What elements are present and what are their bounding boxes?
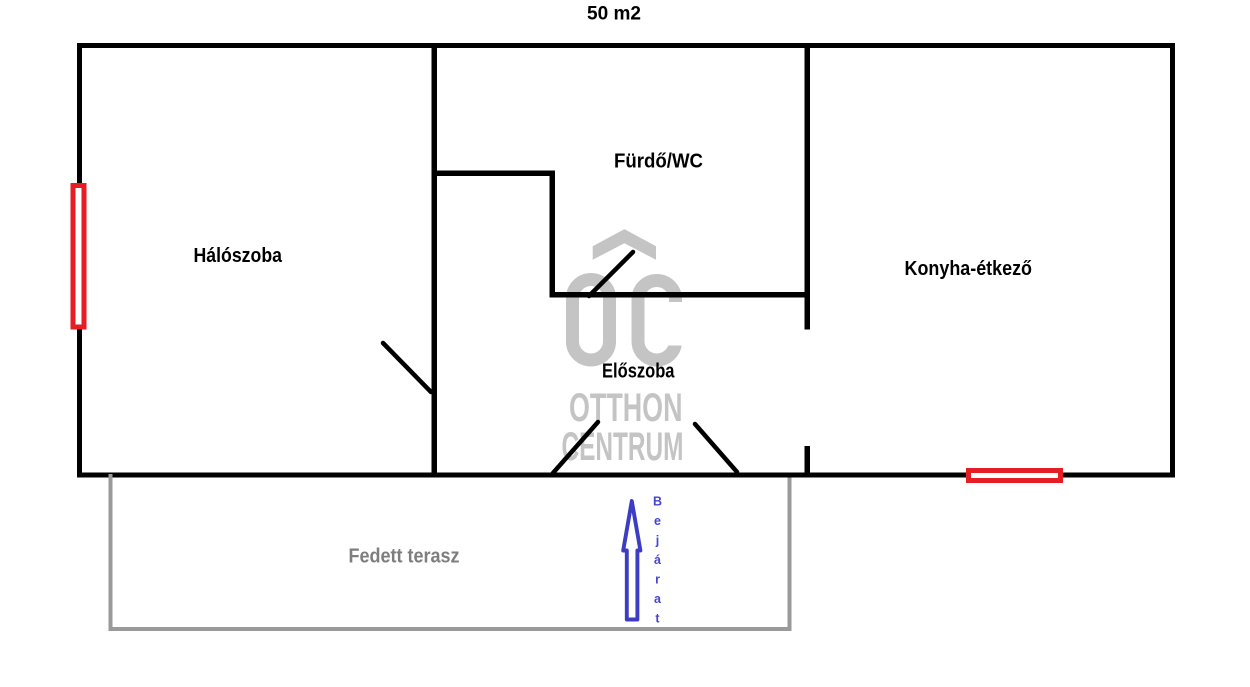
svg-text:B: B (653, 495, 662, 509)
svg-text:e: e (654, 514, 661, 528)
svg-text:OTTHON: OTTHON (569, 386, 683, 430)
svg-text:r: r (655, 573, 660, 587)
svg-text:Fedett terasz: Fedett terasz (349, 546, 460, 568)
svg-text:Előszoba: Előszoba (602, 361, 675, 383)
svg-text:50 m2: 50 m2 (587, 4, 641, 25)
svg-text:CENTRUM: CENTRUM (562, 425, 684, 469)
svg-text:j: j (655, 534, 659, 548)
svg-text:Fürdő/WC: Fürdő/WC (614, 151, 703, 173)
svg-text:á: á (654, 553, 661, 567)
svg-text:Hálószoba: Hálószoba (194, 245, 283, 267)
svg-text:a: a (654, 592, 662, 606)
svg-text:Konyha-étkező: Konyha-étkező (905, 258, 1033, 280)
